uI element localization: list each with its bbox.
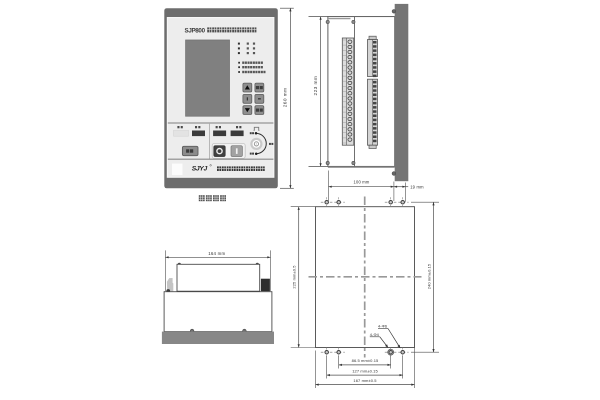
svg-text:19 mm: 19 mm xyxy=(410,184,424,189)
svg-text:127 mm±0.15: 127 mm±0.15 xyxy=(352,368,378,373)
svg-text:225 mm±0.5: 225 mm±0.5 xyxy=(292,265,297,289)
svg-text:100 mm: 100 mm xyxy=(354,180,370,185)
svg-text:223 mm: 223 mm xyxy=(313,76,319,96)
svg-text:4-Φ4: 4-Φ4 xyxy=(370,332,380,337)
svg-text:164 mm: 164 mm xyxy=(208,251,225,256)
svg-text:4-Φ6: 4-Φ6 xyxy=(378,324,387,329)
svg-text:167 mm±0.5: 167 mm±0.5 xyxy=(353,378,377,383)
svg-text:SJYJ: SJYJ xyxy=(192,166,208,173)
svg-text:86.5 mm±0.15: 86.5 mm±0.15 xyxy=(352,358,379,363)
svg-text:SJP800: SJP800 xyxy=(185,27,206,34)
svg-text:260 mm: 260 mm xyxy=(283,88,289,108)
svg-text:240 mm±0.15: 240 mm±0.15 xyxy=(426,263,431,289)
